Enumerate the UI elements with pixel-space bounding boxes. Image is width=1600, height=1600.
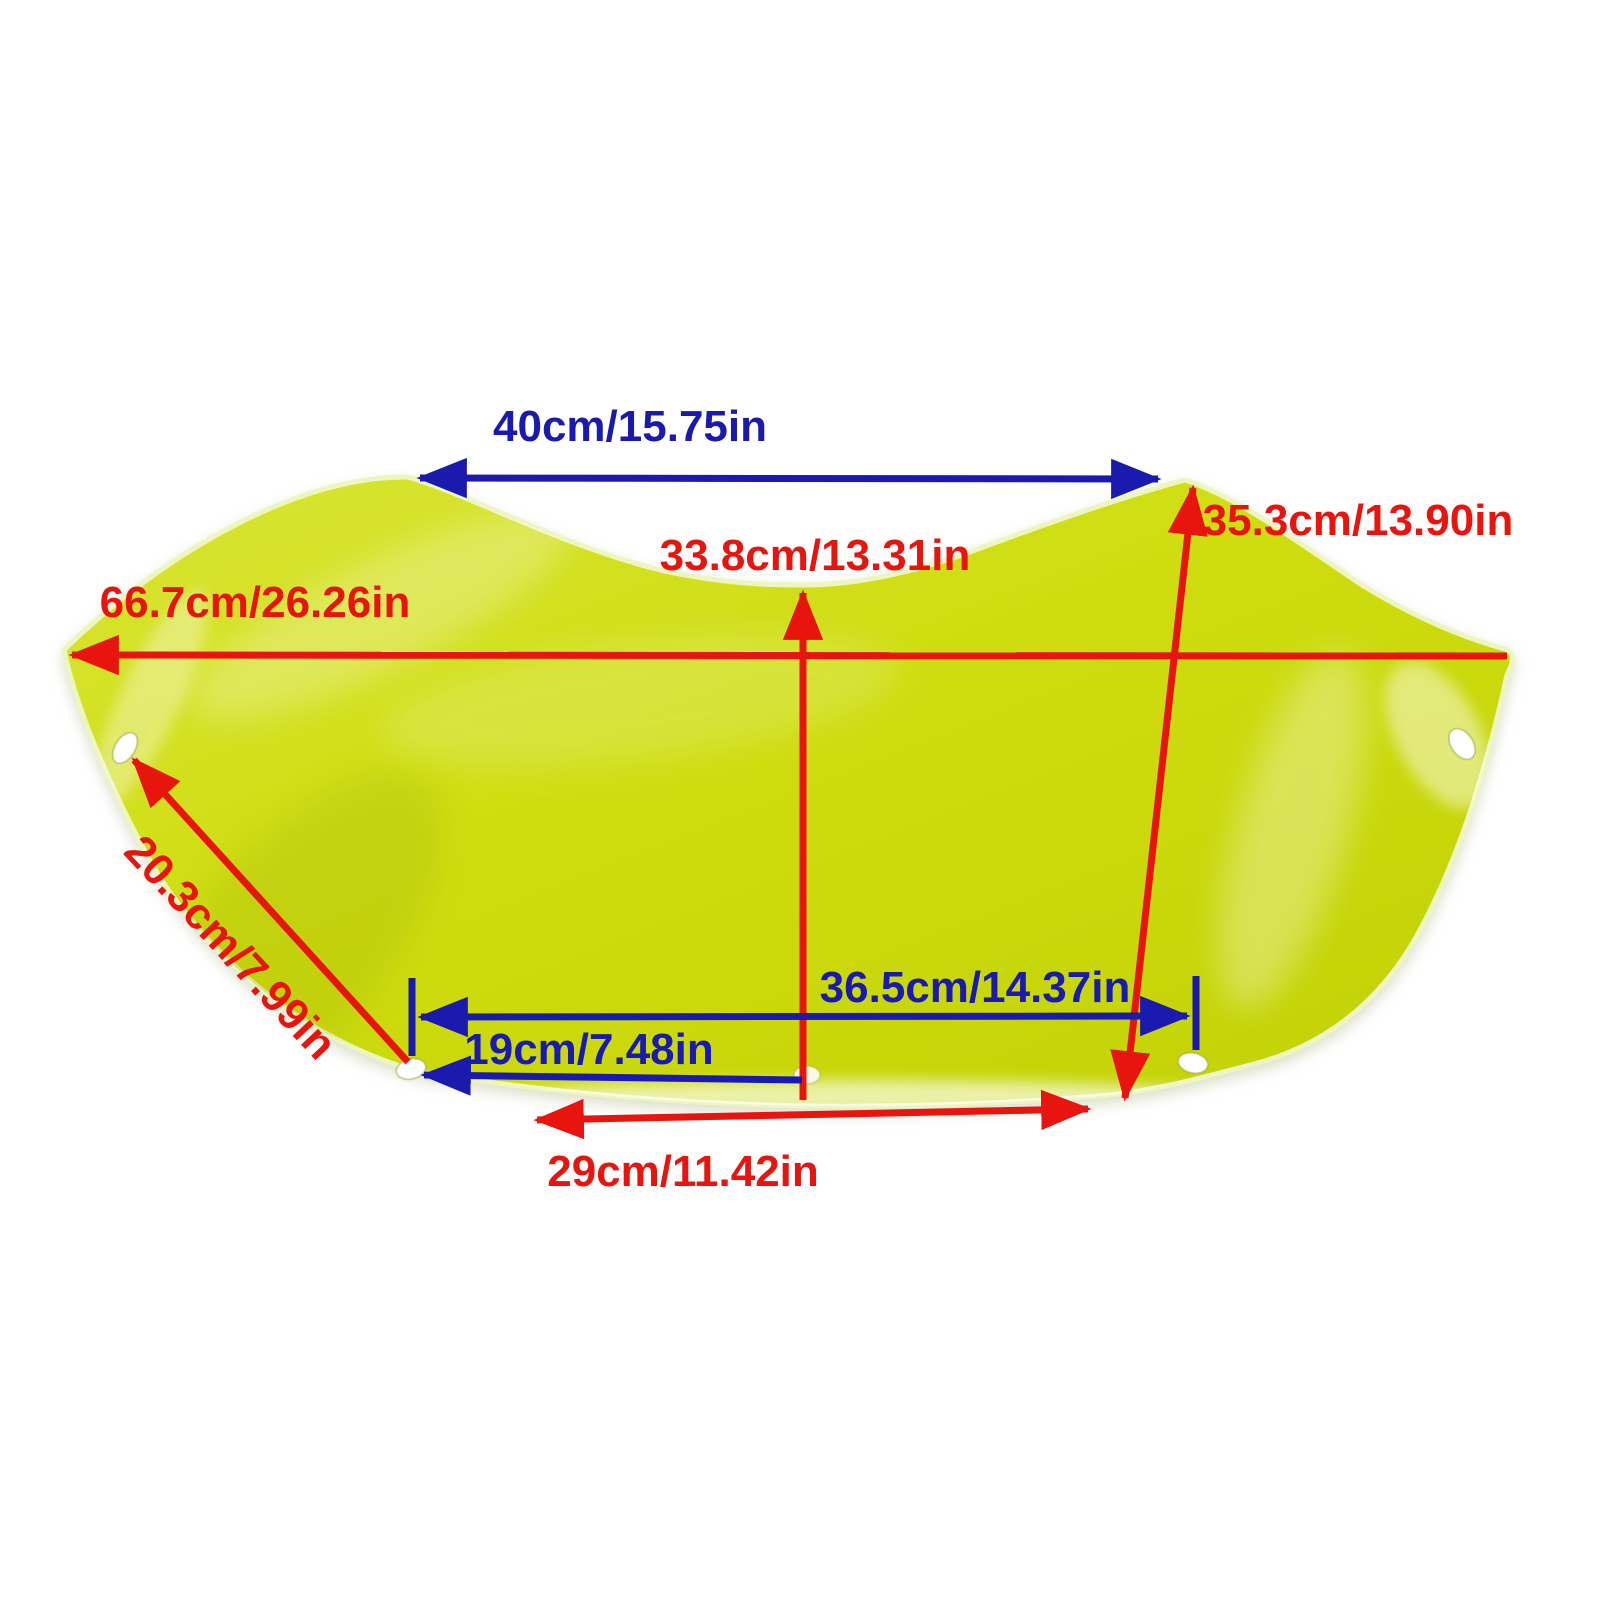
dim-right-height-label: 35.3cm/13.90in <box>1203 499 1514 543</box>
dim-overall-width-label: 66.7cm/26.26in <box>100 581 411 625</box>
dim-hole-offset-arrow <box>424 1075 802 1080</box>
dim-hole-offset-width-label: 19cm/7.48in <box>464 1028 714 1072</box>
dim-top-opening-width-arrow <box>420 478 1158 479</box>
dim-bottom-width-label: 29cm/11.42in <box>547 1150 819 1194</box>
dim-bottom-width-arrow <box>537 1109 1088 1120</box>
dim-overall-width-arrow <box>72 655 1507 656</box>
dim-mount-hole-span-arrow <box>421 1016 1187 1017</box>
diagram-graphics <box>0 0 1600 1600</box>
windshield-dimension-diagram: 40cm/15.75in 33.8cm/13.31in 35.3cm/13.90… <box>0 0 1600 1600</box>
dim-center-height-label: 33.8cm/13.31in <box>660 534 971 578</box>
dim-mount-hole-span-label: 36.5cm/14.37in <box>820 966 1131 1010</box>
dim-top-opening-width-label: 40cm/15.75in <box>493 405 767 449</box>
